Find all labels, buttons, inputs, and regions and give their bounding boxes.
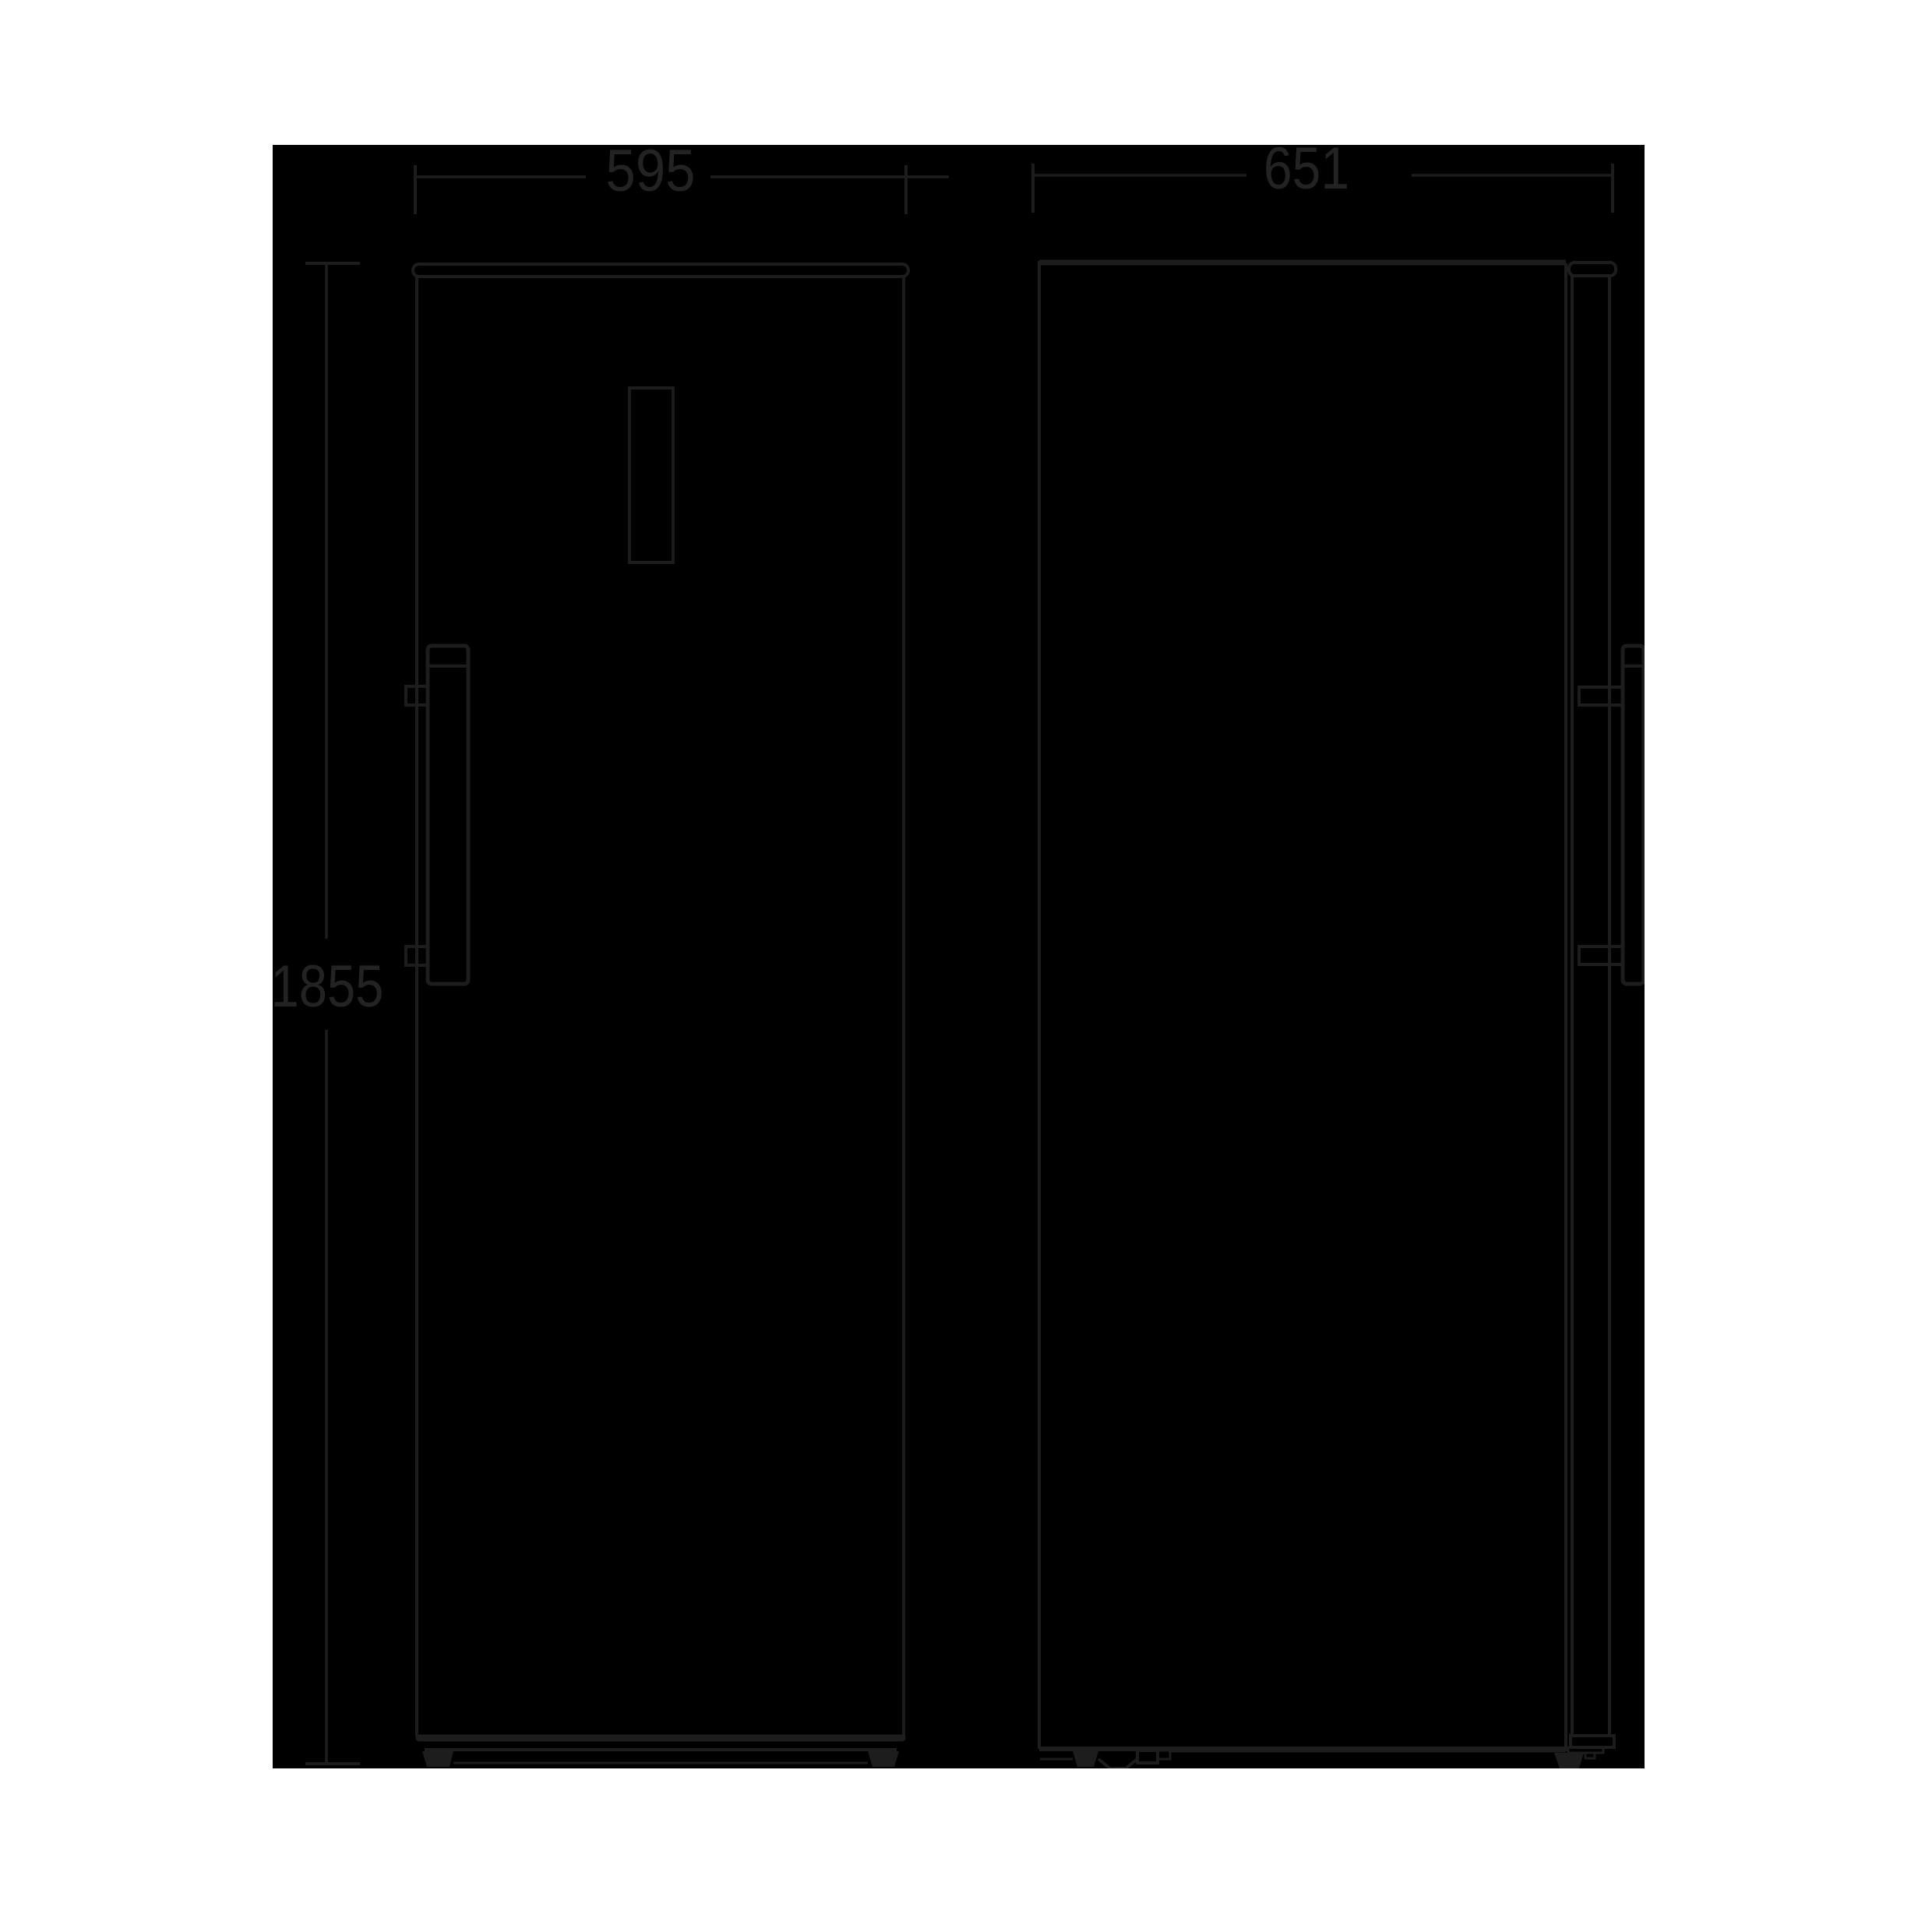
side-front-foot [1073, 1751, 1098, 1767]
width-dimension-label: 595 [606, 145, 696, 204]
side-door-bottom-cap [1571, 1736, 1614, 1747]
diagram-canvas: 595 651 1855 [273, 145, 1645, 1768]
height-dimension-label: 1855 [273, 954, 384, 1020]
front-control-panel [629, 388, 673, 562]
front-right-foot [868, 1751, 899, 1767]
depth-dimension: 651 [1033, 145, 1613, 213]
side-view-appliance [1039, 261, 1644, 1768]
width-dimension: 595 [415, 145, 949, 214]
front-top-cap [413, 264, 908, 277]
page: 595 651 1855 [0, 0, 1932, 1932]
front-view-appliance [406, 264, 908, 1767]
side-door-handle [1579, 646, 1644, 984]
side-top-hinge-cover [1569, 263, 1616, 276]
side-underside-parts [1040, 1750, 1595, 1768]
front-left-foot [422, 1751, 453, 1767]
height-dimension: 1855 [273, 263, 384, 1765]
depth-dimension-label: 651 [1264, 145, 1349, 202]
side-rear-foot [1554, 1753, 1584, 1768]
appliance-dimension-diagram: 595 651 1855 [273, 145, 1645, 1768]
